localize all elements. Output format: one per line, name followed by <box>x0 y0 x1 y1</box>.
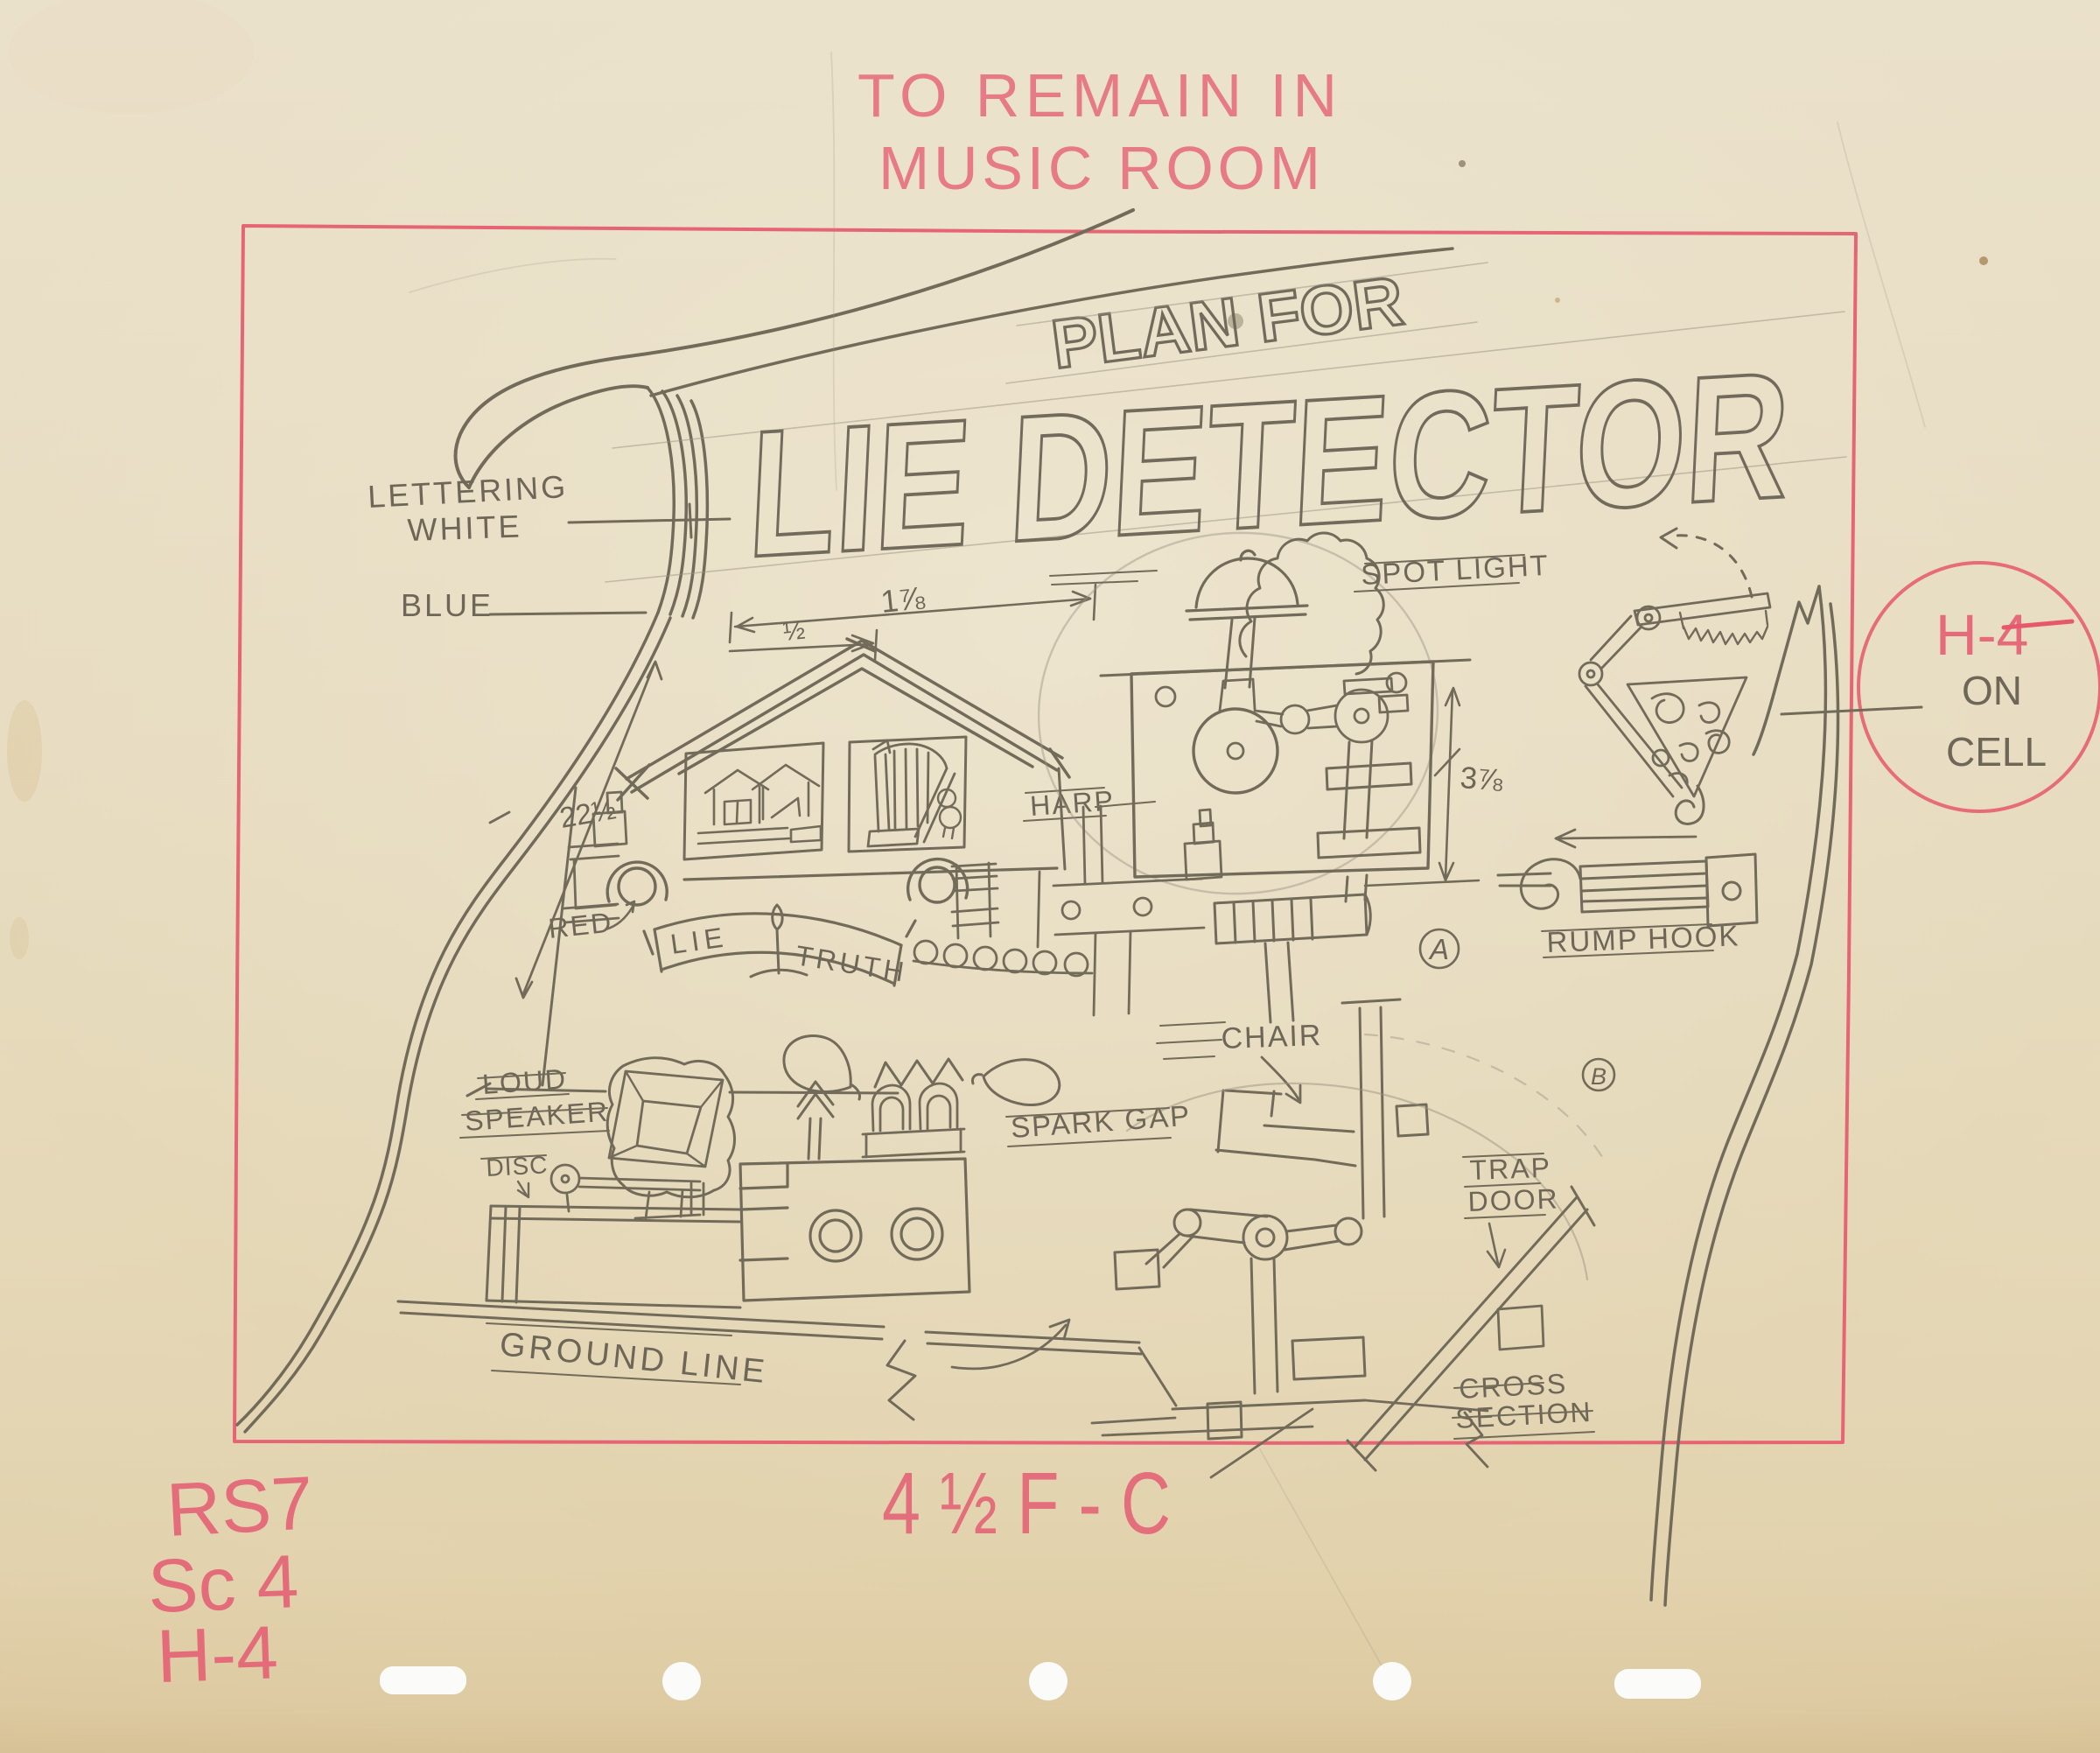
svg-text:WHITE: WHITE <box>407 508 522 548</box>
svg-text:DOOR: DOOR <box>1467 1182 1559 1217</box>
svg-text:3⅞: 3⅞ <box>1459 761 1504 797</box>
svg-text:1⅞: 1⅞ <box>879 579 927 620</box>
svg-text:4 ½ F - C: 4 ½ F - C <box>882 1455 1171 1553</box>
svg-text:H-4: H-4 <box>155 1610 279 1699</box>
svg-text:ON: ON <box>1962 668 2022 713</box>
svg-text:RS7: RS7 <box>164 1461 315 1553</box>
svg-text:B: B <box>1591 1063 1606 1090</box>
svg-text:CHAIR: CHAIR <box>1221 1019 1323 1055</box>
svg-text:CELL: CELL <box>1946 729 2047 775</box>
svg-text:MUSIC ROOM: MUSIC ROOM <box>878 134 1320 202</box>
svg-text:½: ½ <box>781 616 806 647</box>
svg-text:BLUE: BLUE <box>401 587 493 623</box>
svg-text:A: A <box>1428 933 1449 965</box>
svg-text:H-4: H-4 <box>1935 602 2028 667</box>
